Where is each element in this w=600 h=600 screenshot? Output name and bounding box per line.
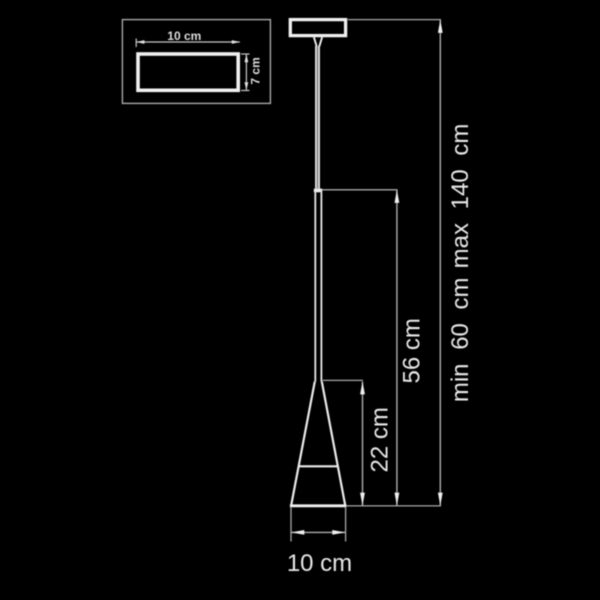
svg-text:max 140 cm: max 140 cm bbox=[447, 124, 474, 269]
svg-text:22 cm: 22 cm bbox=[367, 407, 394, 472]
svg-text:10 cm: 10 cm bbox=[287, 550, 352, 577]
svg-text:min 60 cm: min 60 cm bbox=[447, 277, 474, 402]
svg-text:56 cm: 56 cm bbox=[399, 318, 426, 383]
svg-text:10 cm: 10 cm bbox=[167, 29, 201, 43]
svg-text:7 cm: 7 cm bbox=[249, 57, 263, 84]
